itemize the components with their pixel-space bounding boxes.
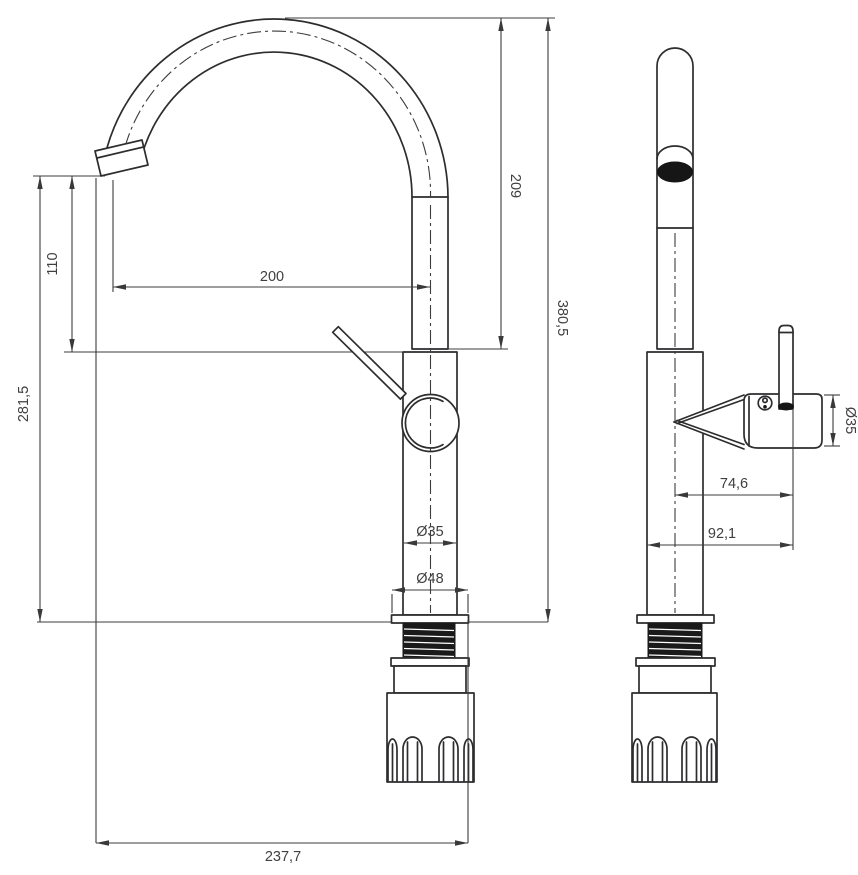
dim-spout-reach: 200 [113,180,430,292]
mounting-nut-side [632,693,717,782]
spout-centerline-arc [120,31,431,197]
dim-label-281-5: 281,5 [16,386,32,422]
spout-outer-arc [102,19,448,197]
dim-label-side-dia35: Ø35 [842,407,858,434]
handle-rod [779,326,793,410]
dim-spout-drop: 110 [45,176,75,352]
base-flange-side [637,615,714,623]
mounting-plate-side [636,658,715,666]
aerator-outlet [658,162,693,182]
dim-label-209: 209 [507,174,523,198]
spout-inner-arc [139,52,412,197]
drawing-page: 281,5 110 209 380,5 2 [0,0,858,875]
faucet-dimension-drawing: 281,5 110 209 380,5 2 [0,0,858,875]
dim-side-body-diameter: Ø35 [824,395,858,446]
dim-label-74-6: 74,6 [720,476,748,492]
dim-label-dia35: Ø35 [416,524,443,540]
base-flange [392,615,469,623]
mounting-neck [394,666,466,693]
handle-rod-base [779,403,794,410]
spout-tip [95,140,148,176]
mounting-neck-side [639,666,711,693]
handle-lever [333,327,406,399]
dim-label-380-5: 380,5 [554,300,570,336]
dim-spout-height: 209 [498,18,523,349]
extension-lines [33,18,555,843]
dim-outlet-height: 281,5 [16,176,43,622]
mounting-plate [391,658,469,666]
mounting-nut [387,693,474,782]
dim-overall-height: 380,5 [545,18,570,622]
threaded-shank [403,623,455,658]
dim-label-dia48: Ø48 [416,571,443,587]
front-view-faucet [95,19,474,782]
dim-label-200: 200 [260,269,284,285]
dim-label-92-1: 92,1 [708,526,736,542]
dim-label-110: 110 [45,252,61,275]
dim-label-237-7: 237,7 [265,849,301,865]
threaded-shank-side [648,623,702,658]
